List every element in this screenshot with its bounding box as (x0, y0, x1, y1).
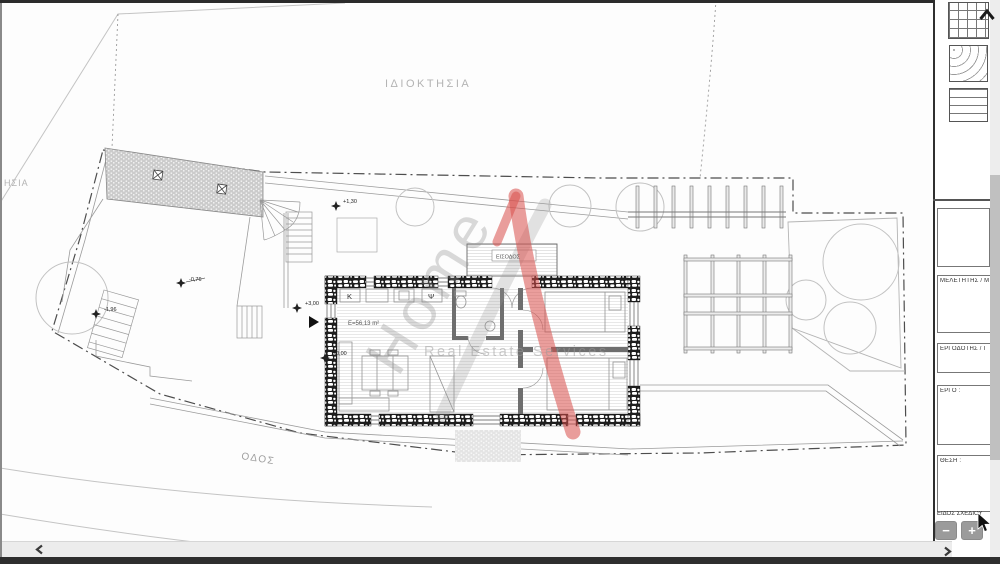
hatch-swatch-lines[interactable] (949, 88, 988, 122)
level-roof: +3,00 (305, 301, 319, 307)
level-markers: +1,30 -0,76 +3,00 ±0,00 -1,96 (91, 199, 357, 363)
level-deck: +1,30 (343, 199, 357, 205)
label-property-top: ΙΔΙΟΚΤΗΣΙΑ (385, 78, 471, 90)
field-label-designer: ΜΕΛΕΤΗΤΗΣ / Μ (940, 278, 994, 284)
hatch-swatch-dots[interactable] (949, 45, 988, 82)
label-laundry: Ψ (428, 292, 434, 301)
horizontal-scrollbar[interactable] (0, 541, 952, 557)
level-ground: ±0,00 (333, 351, 347, 357)
zoom-out-button[interactable]: − (935, 521, 957, 540)
field-label-location: ΘΕΣΗ : (940, 458, 994, 464)
floorplan-viewer-window: Home Real Estate Services ΙΔΙΟΚΤΗΣΙΑ ΗΣΙ… (0, 0, 1000, 564)
level-lower: -1,96 (104, 307, 117, 313)
watermark-tagline: Real Estate Services (424, 344, 609, 360)
top-border-bar (0, 0, 933, 3)
field-box-location: ΘΕΣΗ : (937, 455, 997, 512)
label-area: Ε=56,13 m² (348, 321, 379, 327)
field-box-empty (937, 208, 990, 267)
label-property-left: ΗΣΙΑ (4, 178, 29, 188)
south-steps (455, 430, 521, 462)
left-border-line (0, 3, 2, 557)
east-garden (788, 218, 905, 371)
entry-arrow (309, 316, 319, 328)
field-label-project: ΕΡΓΟ : (940, 388, 994, 394)
field-label-client: ΕΡΓΟΔΟΤΗΣ / Ι (940, 346, 994, 352)
timber-deck (105, 148, 263, 217)
pergola-grid (684, 255, 792, 353)
bottom-border-bar (0, 557, 1000, 564)
panel-divider (933, 199, 993, 201)
field-box-client: ΕΡΓΟΔΟΤΗΣ / Ι (937, 343, 997, 373)
scroll-up-icon[interactable] (978, 7, 996, 24)
field-box-designer: ΜΕΛΕΤΗΤΗΣ / Μ (937, 275, 997, 333)
label-entrance: ΕΙΣΟΔΟΣ (496, 255, 521, 261)
scroll-right-icon[interactable] (940, 546, 954, 557)
site-plan-canvas[interactable]: Home Real Estate Services ΙΔΙΟΚΤΗΣΙΑ ΗΣΙ… (0, 0, 1000, 564)
pergola-north (628, 186, 786, 228)
terrain-contours (0, 3, 432, 556)
scroll-left-icon[interactable] (33, 544, 47, 555)
label-road: ΟΔΟΣ (241, 451, 276, 467)
label-kitchen: Κ (347, 292, 352, 301)
field-box-project: ΕΡΓΟ : (937, 385, 997, 445)
vertical-scrollbar-thumb[interactable] (990, 175, 1000, 460)
